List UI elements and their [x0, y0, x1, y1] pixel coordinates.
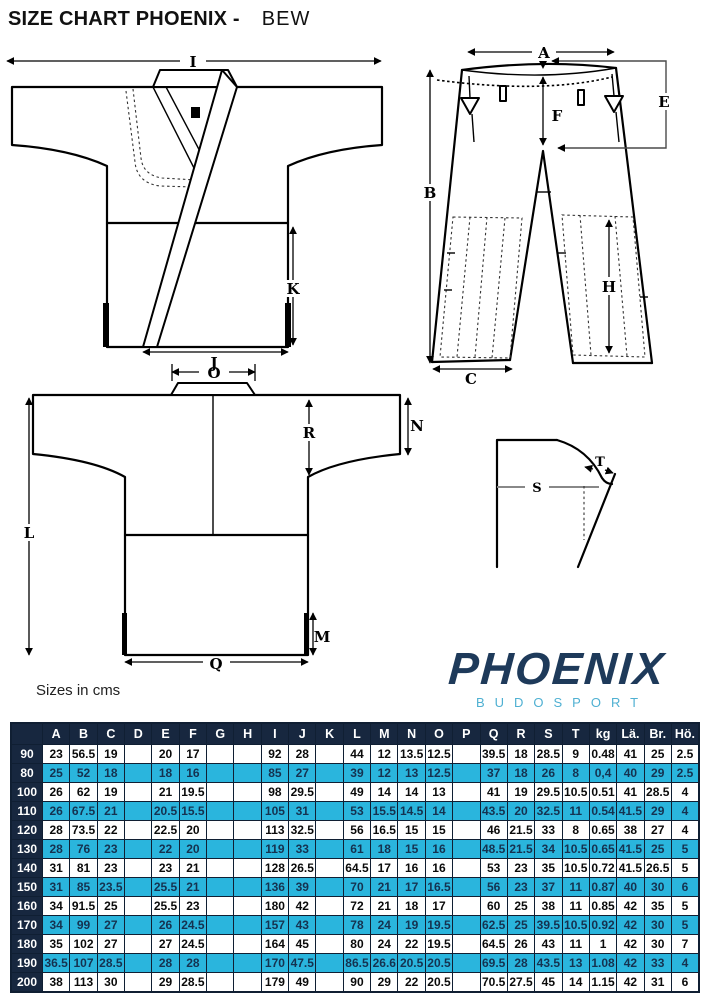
table-cell: 41	[480, 783, 507, 802]
table-cell	[316, 745, 343, 764]
table-cell: 39.5	[480, 745, 507, 764]
table-cell: 19	[97, 745, 124, 764]
table-cell: 99	[70, 916, 97, 935]
table-cell	[234, 973, 261, 993]
table-cell: 10.5	[562, 916, 589, 935]
table-cell: 24	[371, 916, 398, 935]
table-cell	[234, 897, 261, 916]
row-size-label: 170	[11, 916, 43, 935]
table-cell: 28	[289, 745, 316, 764]
table-cell: 28.5	[535, 745, 562, 764]
table-cell: 23	[43, 745, 70, 764]
table-cell: 28	[43, 821, 70, 840]
table-cell: 91.5	[70, 897, 97, 916]
table-cell: 22	[398, 935, 425, 954]
row-size-label: 120	[11, 821, 43, 840]
table-cell: 11	[562, 897, 589, 916]
table-cell: 49	[289, 973, 316, 993]
table-cell	[125, 935, 152, 954]
table-cell	[316, 897, 343, 916]
table-cell: 19.5	[425, 916, 452, 935]
table-cell	[125, 916, 152, 935]
row-size-label: 110	[11, 802, 43, 821]
table-cell	[234, 745, 261, 764]
table-row: 1703499272624.51574378241919.562.52539.5…	[11, 916, 699, 935]
table-cell: 31	[644, 973, 671, 993]
table-cell: 0.48	[589, 745, 616, 764]
table-cell: 0.85	[589, 897, 616, 916]
row-size-label: 100	[11, 783, 43, 802]
table-cell: 4	[671, 802, 699, 821]
column-header: G	[207, 723, 234, 745]
table-cell: 27	[644, 821, 671, 840]
table-cell	[125, 745, 152, 764]
table-cell: 170	[261, 954, 288, 973]
table-cell: 69.5	[480, 954, 507, 973]
table-cell	[316, 764, 343, 783]
row-size-label: 90	[11, 745, 43, 764]
table-cell	[125, 783, 152, 802]
table-cell: 49	[343, 783, 370, 802]
table-cell: 23	[152, 859, 179, 878]
table-cell: 1.08	[589, 954, 616, 973]
table-cell	[316, 935, 343, 954]
table-cell	[125, 802, 152, 821]
size-table-header-row: ABCDEFGHIJKLMNOPQRSTkgLä.Br.Hö.	[11, 723, 699, 745]
table-cell: 4	[671, 954, 699, 973]
table-cell: 20.5	[425, 954, 452, 973]
table-cell: 56	[343, 821, 370, 840]
table-row: 18035102272724.51644580242219.564.526431…	[11, 935, 699, 954]
table-cell: 10.5	[562, 840, 589, 859]
row-size-label: 150	[11, 878, 43, 897]
table-cell: 10.5	[562, 783, 589, 802]
table-cell	[234, 821, 261, 840]
table-cell	[234, 954, 261, 973]
table-cell: 30	[644, 916, 671, 935]
table-row: 150318523.525.5211363970211716.556233711…	[11, 878, 699, 897]
table-cell: 41.5	[617, 840, 644, 859]
table-cell: 21	[371, 897, 398, 916]
table-cell	[207, 897, 234, 916]
table-cell: 9	[562, 745, 589, 764]
column-header: T	[562, 723, 589, 745]
table-cell	[207, 916, 234, 935]
table-cell	[453, 764, 480, 783]
table-cell: 35	[43, 935, 70, 954]
table-cell: 27	[289, 764, 316, 783]
row-size-label: 190	[11, 954, 43, 973]
dim-label-k: K	[286, 280, 300, 298]
table-cell: 86.5	[343, 954, 370, 973]
pants-diagram: H A B E F C	[422, 44, 673, 388]
column-header: Lä.	[617, 723, 644, 745]
table-cell: 34	[535, 840, 562, 859]
column-header: C	[97, 723, 124, 745]
table-cell: 20	[507, 802, 534, 821]
dim-label-c: C	[465, 370, 477, 388]
table-cell: 34	[43, 897, 70, 916]
dim-label-s: S	[532, 481, 541, 496]
table-cell	[316, 954, 343, 973]
table-row: 1302876232220119336118151648.521.53410.5…	[11, 840, 699, 859]
collar-detail-diagram: S T	[497, 440, 615, 567]
table-cell: 0.72	[589, 859, 616, 878]
table-cell: 10.5	[562, 859, 589, 878]
table-cell: 40	[617, 878, 644, 897]
table-cell: 43.5	[480, 802, 507, 821]
column-header: D	[125, 723, 152, 745]
column-header: O	[425, 723, 452, 745]
table-cell: 42	[617, 897, 644, 916]
table-cell: 164	[261, 935, 288, 954]
table-cell: 28	[43, 840, 70, 859]
table-cell: 20	[152, 745, 179, 764]
table-cell: 92	[261, 745, 288, 764]
table-cell: 73.5	[70, 821, 97, 840]
table-cell: 22.5	[152, 821, 179, 840]
row-size-label: 200	[11, 973, 43, 993]
table-cell: 22	[398, 973, 425, 993]
table-cell: 18	[507, 764, 534, 783]
column-header: kg	[589, 723, 616, 745]
table-cell: 0.87	[589, 878, 616, 897]
dim-label-n: N	[410, 417, 424, 435]
table-cell	[125, 897, 152, 916]
dim-label-q: Q	[209, 655, 222, 673]
dim-label-r: R	[303, 424, 316, 442]
table-cell	[234, 840, 261, 859]
table-row: 19036.510728.5282817047.586.526.620.520.…	[11, 954, 699, 973]
table-cell: 19	[507, 783, 534, 802]
dim-label-l: L	[24, 524, 35, 542]
table-cell: 0.54	[589, 802, 616, 821]
table-cell: 13	[562, 954, 589, 973]
table-cell: 12	[371, 745, 398, 764]
table-cell: 42	[617, 935, 644, 954]
table-cell: 15.5	[371, 802, 398, 821]
units-note: Sizes in cms	[36, 682, 120, 699]
table-cell: 22	[97, 821, 124, 840]
table-cell: 26	[152, 916, 179, 935]
table-cell: 39	[343, 764, 370, 783]
table-cell: 0.65	[589, 821, 616, 840]
table-cell	[207, 840, 234, 859]
table-cell: 53	[343, 802, 370, 821]
table-cell: 42	[617, 973, 644, 993]
table-cell: 19.5	[179, 783, 206, 802]
table-cell	[234, 935, 261, 954]
table-cell: 113	[261, 821, 288, 840]
table-cell	[234, 764, 261, 783]
row-size-label: 80	[11, 764, 43, 783]
table-cell: 20	[179, 821, 206, 840]
table-cell: 14	[562, 973, 589, 993]
table-cell: 102	[70, 935, 97, 954]
table-cell: 90	[343, 973, 370, 993]
table-cell: 18	[507, 745, 534, 764]
table-cell: 11	[562, 935, 589, 954]
table-cell: 4	[671, 821, 699, 840]
table-cell: 21	[97, 802, 124, 821]
table-cell: 24.5	[179, 916, 206, 935]
table-cell: 30	[644, 878, 671, 897]
table-cell: 17	[425, 897, 452, 916]
table-cell: 41	[617, 745, 644, 764]
table-cell	[316, 821, 343, 840]
column-header: R	[507, 723, 534, 745]
table-cell: 15	[398, 840, 425, 859]
table-cell: 38	[535, 897, 562, 916]
table-cell: 13.5	[398, 745, 425, 764]
table-cell	[234, 802, 261, 821]
table-cell: 33	[289, 840, 316, 859]
size-diagrams: I K J	[0, 0, 702, 715]
table-cell: 1.15	[589, 973, 616, 993]
table-cell: 52	[70, 764, 97, 783]
table-cell: 41.5	[617, 802, 644, 821]
table-cell: 53	[480, 859, 507, 878]
table-cell: 16	[425, 859, 452, 878]
table-cell: 28.5	[644, 783, 671, 802]
table-cell: 43	[289, 916, 316, 935]
column-header: A	[43, 723, 70, 745]
column-header: K	[316, 723, 343, 745]
dim-label-h: H	[602, 278, 616, 296]
table-row: 1202873.52222.52011332.55616.515154621.5…	[11, 821, 699, 840]
table-cell: 14	[398, 783, 425, 802]
table-cell: 26.5	[289, 859, 316, 878]
table-cell: 14.5	[398, 802, 425, 821]
size-table: ABCDEFGHIJKLMNOPQRSTkgLä.Br.Hö. 902356.5…	[10, 722, 700, 993]
table-cell: 24.5	[179, 935, 206, 954]
table-cell: 12.5	[425, 745, 452, 764]
column-header: M	[371, 723, 398, 745]
table-cell: 41.5	[617, 859, 644, 878]
table-cell: 11	[562, 802, 589, 821]
table-cell: 48.5	[480, 840, 507, 859]
table-cell: 23	[507, 878, 534, 897]
table-cell: 70	[343, 878, 370, 897]
table-cell: 16.5	[371, 821, 398, 840]
table-cell	[453, 973, 480, 993]
table-cell: 42	[617, 916, 644, 935]
table-cell: 25	[97, 897, 124, 916]
table-cell: 38	[617, 821, 644, 840]
table-cell: 5	[671, 859, 699, 878]
table-cell: 16	[425, 840, 452, 859]
table-cell: 23	[507, 859, 534, 878]
table-cell: 28.5	[179, 973, 206, 993]
table-cell: 14	[371, 783, 398, 802]
table-cell	[453, 916, 480, 935]
table-cell: 31	[289, 802, 316, 821]
table-cell	[316, 802, 343, 821]
column-header: S	[535, 723, 562, 745]
table-cell: 45	[535, 973, 562, 993]
table-cell: 29.5	[289, 783, 316, 802]
table-cell: 33	[644, 954, 671, 973]
table-cell: 0,4	[589, 764, 616, 783]
size-table-body: 902356.51920179228441213.512.539.51828.5…	[11, 745, 699, 993]
table-cell: 67.5	[70, 802, 97, 821]
table-cell: 31	[43, 859, 70, 878]
table-cell: 70.5	[480, 973, 507, 993]
table-cell: 39	[289, 878, 316, 897]
table-cell: 78	[343, 916, 370, 935]
table-cell: 20.5	[398, 954, 425, 973]
table-cell: 136	[261, 878, 288, 897]
table-cell: 13	[398, 764, 425, 783]
table-cell: 119	[261, 840, 288, 859]
table-cell: 17	[179, 745, 206, 764]
table-cell: 0.65	[589, 840, 616, 859]
column-header: E	[152, 723, 179, 745]
table-cell: 76	[70, 840, 97, 859]
table-cell: 21	[179, 878, 206, 897]
table-cell	[234, 878, 261, 897]
table-cell: 105	[261, 802, 288, 821]
table-cell	[453, 859, 480, 878]
table-cell: 21.5	[507, 821, 534, 840]
table-cell: 98	[261, 783, 288, 802]
logo-budosport-wordmark: BUDOSPORT	[415, 695, 699, 710]
table-cell: 29	[644, 802, 671, 821]
table-cell	[125, 764, 152, 783]
table-cell: 26.5	[644, 859, 671, 878]
table-cell: 157	[261, 916, 288, 935]
table-cell	[453, 935, 480, 954]
table-cell: 16	[179, 764, 206, 783]
jacket-front-diagram: I K J	[7, 53, 382, 372]
table-row: 1002662192119.59829.549141413411929.510.…	[11, 783, 699, 802]
table-cell: 8	[562, 764, 589, 783]
table-cell: 23	[97, 859, 124, 878]
table-cell: 29	[152, 973, 179, 993]
table-cell	[207, 859, 234, 878]
table-cell: 21.5	[507, 840, 534, 859]
column-header: Q	[480, 723, 507, 745]
table-cell	[453, 745, 480, 764]
table-cell: 25	[43, 764, 70, 783]
table-cell: 19.5	[425, 935, 452, 954]
table-cell: 12.5	[425, 764, 452, 783]
table-cell: 6	[671, 973, 699, 993]
table-cell: 1	[589, 935, 616, 954]
dim-label-m: M	[314, 628, 331, 646]
table-cell	[125, 859, 152, 878]
table-cell: 21	[371, 878, 398, 897]
table-cell	[316, 973, 343, 993]
table-cell: 28	[507, 954, 534, 973]
table-cell: 32.5	[535, 802, 562, 821]
table-row: 1102667.52120.515.5105315315.514.51443.5…	[11, 802, 699, 821]
table-cell: 23	[97, 840, 124, 859]
table-cell: 60	[480, 897, 507, 916]
table-cell: 27.5	[507, 973, 534, 993]
table-cell	[453, 878, 480, 897]
table-row: 1603491.52525.5231804272211817602538110.…	[11, 897, 699, 916]
table-cell: 56	[480, 878, 507, 897]
table-cell: 18	[152, 764, 179, 783]
table-cell: 28	[152, 954, 179, 973]
table-cell: 4	[671, 783, 699, 802]
table-cell: 26	[43, 802, 70, 821]
dim-label-t: T	[595, 455, 605, 470]
table-cell: 179	[261, 973, 288, 993]
table-cell	[453, 840, 480, 859]
table-cell: 85	[261, 764, 288, 783]
table-cell: 34	[43, 916, 70, 935]
table-cell: 38	[43, 973, 70, 993]
table-cell: 37	[480, 764, 507, 783]
dim-label-i: I	[189, 53, 196, 71]
table-cell: 64.5	[480, 935, 507, 954]
dim-label-e: E	[658, 93, 669, 111]
table-cell: 23.5	[97, 878, 124, 897]
column-header: Hö.	[671, 723, 699, 745]
table-cell	[125, 973, 152, 993]
table-cell: 19	[97, 783, 124, 802]
table-cell: 30	[97, 973, 124, 993]
table-cell: 29	[644, 764, 671, 783]
column-header: F	[179, 723, 206, 745]
table-cell: 80	[343, 935, 370, 954]
table-cell: 2.5	[671, 764, 699, 783]
table-cell: 20.5	[152, 802, 179, 821]
table-cell: 27	[97, 935, 124, 954]
column-header: H	[234, 723, 261, 745]
dim-label-b: B	[424, 184, 437, 202]
table-cell: 43.5	[535, 954, 562, 973]
table-cell: 40	[617, 764, 644, 783]
table-row: 902356.51920179228441213.512.539.51828.5…	[11, 745, 699, 764]
table-cell: 21	[179, 859, 206, 878]
table-cell: 15	[398, 821, 425, 840]
table-cell: 22	[152, 840, 179, 859]
table-cell: 20	[179, 840, 206, 859]
table-cell	[316, 878, 343, 897]
table-cell: 62.5	[480, 916, 507, 935]
table-cell: 25	[507, 916, 534, 935]
table-cell: 28.5	[97, 954, 124, 973]
table-cell: 31	[43, 878, 70, 897]
table-cell: 42	[289, 897, 316, 916]
table-cell: 42	[617, 954, 644, 973]
table-cell: 24	[371, 935, 398, 954]
table-cell	[125, 954, 152, 973]
table-cell: 25	[644, 840, 671, 859]
table-cell	[207, 764, 234, 783]
table-cell: 180	[261, 897, 288, 916]
table-cell	[234, 783, 261, 802]
table-cell: 29	[371, 973, 398, 993]
table-cell: 39.5	[535, 916, 562, 935]
table-cell	[316, 859, 343, 878]
table-cell	[207, 783, 234, 802]
table-cell: 128	[261, 859, 288, 878]
table-cell: 21	[152, 783, 179, 802]
table-cell: 33	[535, 821, 562, 840]
table-cell: 15	[425, 821, 452, 840]
table-cell: 26	[507, 935, 534, 954]
table-cell	[207, 935, 234, 954]
table-cell	[125, 821, 152, 840]
table-cell: 19	[398, 916, 425, 935]
table-cell: 35	[535, 859, 562, 878]
table-cell	[234, 859, 261, 878]
table-cell: 35	[644, 897, 671, 916]
